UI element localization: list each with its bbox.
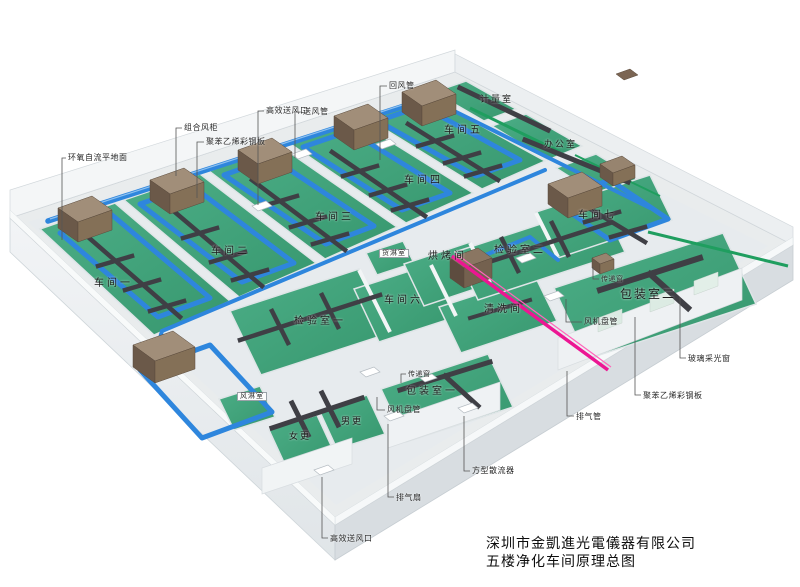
room-label-air-shower: 风淋室 bbox=[237, 392, 267, 401]
room-label-inspection-2: 检验室二 bbox=[494, 246, 546, 256]
room-label-workshop-2: 车间二 bbox=[211, 247, 250, 257]
metering-duct-cap bbox=[616, 69, 638, 80]
room-label-workshop-3: 车间三 bbox=[315, 213, 354, 223]
callout-exhaust-fan: 排气扇 bbox=[396, 494, 422, 502]
callout-epoxy-floor: 环氧自流平地面 bbox=[68, 154, 128, 162]
callout-square-diffuser: 方型散流器 bbox=[472, 467, 515, 475]
room-label-workshop-6: 车间六 bbox=[384, 296, 423, 306]
callout-hepa-outlet-bottom: 高效送风口 bbox=[330, 535, 373, 543]
callout-supply-duct: 送风管 bbox=[303, 108, 329, 116]
callout-steel-panel-top: 聚苯乙烯彩钢板 bbox=[206, 138, 266, 146]
room-label-baking: 烘烤间 bbox=[428, 252, 467, 262]
callout-exhaust-pipe: 排气管 bbox=[576, 413, 602, 421]
room-label-workshop-1: 车间一 bbox=[94, 279, 133, 289]
room-label-workshop-5: 车间五 bbox=[444, 126, 483, 136]
room-label-metering: 计量室 bbox=[480, 95, 513, 104]
callout-transfer-window-right: 传递窗 bbox=[601, 276, 624, 283]
cleanroom-isometric-diagram: 车间一 车间二 车间三 车间四 车间五 车间六 车间七 检验室一 检验室二 包装… bbox=[0, 0, 800, 587]
room-label-workshop-4: 车间四 bbox=[404, 176, 443, 186]
callout-fan-coil-right: 风机盘管 bbox=[584, 318, 618, 326]
room-label-inspection-1: 检验室一 bbox=[294, 317, 346, 327]
callout-glass-window: 玻璃采光窗 bbox=[688, 355, 731, 363]
room-label-cleaning: 清洗间 bbox=[484, 305, 523, 315]
company-name: 深圳市金凱進光電儀器有限公司 bbox=[486, 538, 696, 552]
room-label-women-changing: 女更 bbox=[289, 432, 311, 441]
room-label-office: 办公室 bbox=[544, 140, 577, 149]
room-label-packing-1: 包装室一 bbox=[406, 387, 458, 397]
drawing-title: 五楼净化车间原理总图 bbox=[486, 556, 636, 570]
callout-fan-coil-center: 风机盘管 bbox=[387, 406, 421, 414]
room-label-workshop-7: 车间七 bbox=[578, 211, 617, 221]
callout-combined-ahu: 组合风柜 bbox=[184, 124, 218, 132]
room-label-men-changing: 男更 bbox=[341, 417, 363, 426]
callout-transfer-window-center: 传递窗 bbox=[408, 371, 431, 378]
callout-return-duct: 回风管 bbox=[389, 82, 415, 90]
room-label-packing-2: 包装室二 bbox=[620, 288, 676, 300]
room-label-cargo-shower: 货淋室 bbox=[379, 249, 409, 258]
callout-steel-panel-right: 聚苯乙烯彩钢板 bbox=[643, 392, 703, 400]
